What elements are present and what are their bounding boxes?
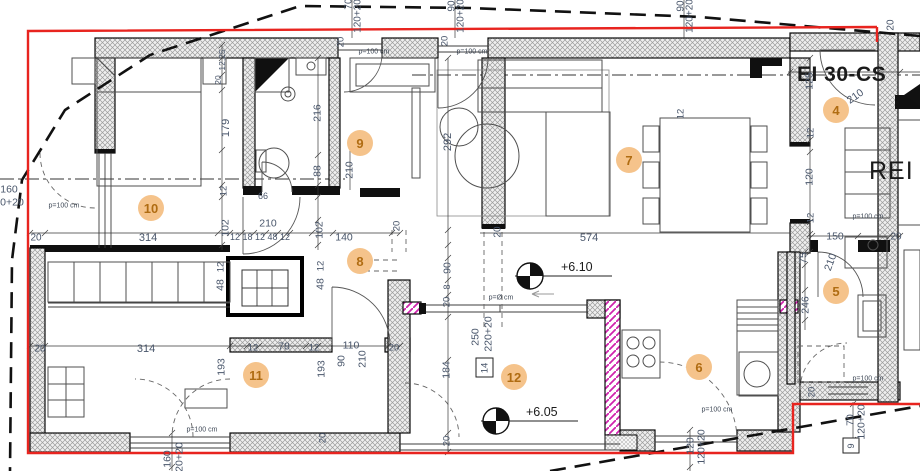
dimension-label: 193 [316, 360, 328, 378]
dimension-label: 120 [804, 168, 816, 186]
dimension-label: 20 [441, 297, 452, 308]
chair [751, 198, 767, 224]
sink [744, 361, 770, 387]
svg-text:5: 5 [832, 284, 839, 299]
dimension-label: 120+20 [174, 442, 186, 471]
svg-text:12: 12 [507, 370, 521, 385]
dimension-label: 12 [805, 128, 816, 139]
mark-box-label: 14 [479, 363, 490, 374]
dimension-label: 184 [441, 361, 453, 379]
floor-plan-page: +6.10 +6.05 EI 30-CS REI 70120+2090120+2… [0, 0, 920, 471]
room-badge-11: 11 [243, 362, 269, 388]
floor-drain [281, 87, 295, 101]
dimension-label: 20 [493, 226, 504, 238]
neighbour-furniture [904, 250, 920, 350]
room-badge-8: 8 [347, 248, 373, 274]
svg-text:9: 9 [356, 136, 363, 151]
rug [437, 70, 609, 216]
dimension-label: 210 [357, 350, 369, 368]
dimension-label: 90 [336, 355, 348, 367]
dimension-label: 20 [890, 232, 902, 243]
dimension-label: 0+20 [0, 197, 24, 209]
dimension-label: 220+20 [483, 316, 495, 351]
dimension-label: 20 [441, 436, 452, 447]
chair [643, 162, 659, 188]
parapet-label: p=100 cm [853, 213, 884, 220]
dimension-label: 20 [391, 221, 402, 232]
dimension-label: 120+20 [456, 0, 467, 33]
svg-text:8: 8 [356, 254, 363, 269]
desk [185, 389, 227, 408]
dimension-label: 250 [470, 328, 482, 346]
dimension-label: 12 [315, 261, 326, 272]
svg-text:4: 4 [832, 103, 840, 118]
level-value: +6.10 [561, 260, 593, 274]
parapet-label: p=100 cm [457, 48, 488, 55]
stove [622, 330, 660, 378]
fire-rating-wall-label: REI [869, 157, 914, 185]
level-marker-605: +6.05 [481, 405, 578, 434]
dimension-label: 210 [344, 161, 356, 179]
dimension-label: 12 [218, 186, 229, 197]
dimension-label: 179 [220, 119, 232, 137]
dimension-label: 110 [343, 340, 360, 352]
dimension-label: 193 [216, 358, 228, 376]
room-badge-7: 7 [616, 147, 642, 173]
svg-text:11: 11 [249, 368, 263, 383]
dimension-label: 75 [798, 252, 810, 264]
parapet-label: p=100 cm [49, 202, 80, 209]
washbasin [296, 58, 326, 75]
dimension-label: 246 [800, 296, 812, 314]
level-value: +6.05 [526, 405, 558, 419]
dimension-label: 120+20 [696, 429, 708, 464]
dimension-label: 8 [442, 284, 452, 289]
dimension-label: 120+20 [685, 0, 696, 33]
svg-text:10: 10 [144, 201, 158, 216]
parapet-label: p=100 cm [187, 426, 218, 433]
dimension-label: 20 [30, 233, 42, 244]
dimension-label: 66 [258, 191, 268, 201]
parapet-label: p=100 cm [853, 375, 884, 382]
dimension-label: 102 [314, 221, 326, 239]
chair [643, 198, 659, 224]
dimension-label: 20 [806, 387, 817, 398]
kitchen-counter [737, 300, 778, 395]
dimension-label: 12 [215, 262, 226, 273]
room-badge-6: 6 [686, 354, 712, 380]
dimension-label: 210 [822, 252, 839, 273]
shower [255, 58, 289, 92]
dimension-label: 292 [442, 133, 454, 151]
wardrobe [48, 262, 230, 302]
dimension-label: 120+20 [856, 404, 868, 439]
dimension-label: 314 [139, 232, 157, 244]
parapet-labels: p=100 cmp=100 cmp=100 cmp=Ø cmp=100 cmp=… [49, 48, 884, 433]
walls [30, 33, 920, 452]
dimension-label: 574 [580, 232, 598, 244]
mark-box-label: 9 [846, 443, 856, 448]
dimension-label: 20 [213, 75, 223, 85]
parapet-label: p=100 cm [359, 48, 390, 55]
chair [751, 162, 767, 188]
dimension-label: 160 [162, 450, 174, 468]
dimension-label: 314 [137, 343, 155, 355]
nightstand [72, 58, 95, 84]
dimension-label: 20 [317, 433, 328, 444]
room-badge-5: 5 [823, 278, 849, 304]
parapet-label: p=100 cm [702, 406, 733, 413]
svg-text:6: 6 [695, 360, 702, 375]
level-marker-610: +6.10 [515, 260, 612, 297]
dimension-label: 160 [0, 184, 18, 196]
svg-text:7: 7 [625, 153, 632, 168]
dimension-label: 48 [315, 278, 327, 290]
dimension-label: 88 [312, 165, 324, 177]
dining-table [660, 118, 750, 232]
floor-plan-canvas: +6.10 +6.05 EI 30-CS REI 70120+2090120+2… [0, 0, 920, 471]
dimension-label: 20 [886, 19, 897, 31]
dimension-label: 125 [804, 72, 816, 90]
dimension-label: 140 [335, 232, 353, 244]
room-badge-10: 10 [138, 195, 164, 221]
dimension-label: 210 [259, 218, 277, 230]
toilet [259, 148, 289, 178]
dimension-label: 78 [278, 341, 290, 353]
dimension-label: 12 [248, 342, 259, 353]
dimension-label: 12 [805, 213, 816, 224]
dimension-label: 12 [309, 342, 320, 353]
axis-lines [0, 75, 920, 179]
dimension-label: 12 18 12 48 12 [230, 232, 290, 242]
room-badge-12: 12 [501, 364, 527, 390]
parapet-label: p=Ø cm [489, 294, 514, 301]
room-badge-4: 4 [823, 97, 849, 123]
dimension-label: 120+20 [353, 0, 364, 33]
room-badge-9: 9 [347, 130, 373, 156]
dimension-label: 48 [215, 279, 227, 291]
dimension-label: 20 [439, 36, 450, 47]
chair [643, 126, 659, 152]
dimension-label: 20 [335, 37, 346, 48]
dimension-labels: 70120+2090120+2090120+2020202012,2520179… [0, 0, 902, 471]
tv-board [412, 88, 420, 178]
chair [751, 126, 767, 152]
dimension-label: 216 [312, 104, 324, 122]
dimension-label: 12 [675, 109, 686, 120]
dimension-label: 20 [389, 342, 400, 353]
dimension-label: 20 [34, 344, 46, 355]
dimension-label: 90 [442, 262, 454, 274]
dimension-label: 150 [826, 231, 844, 243]
dimension-label: 12,25 [217, 49, 227, 71]
